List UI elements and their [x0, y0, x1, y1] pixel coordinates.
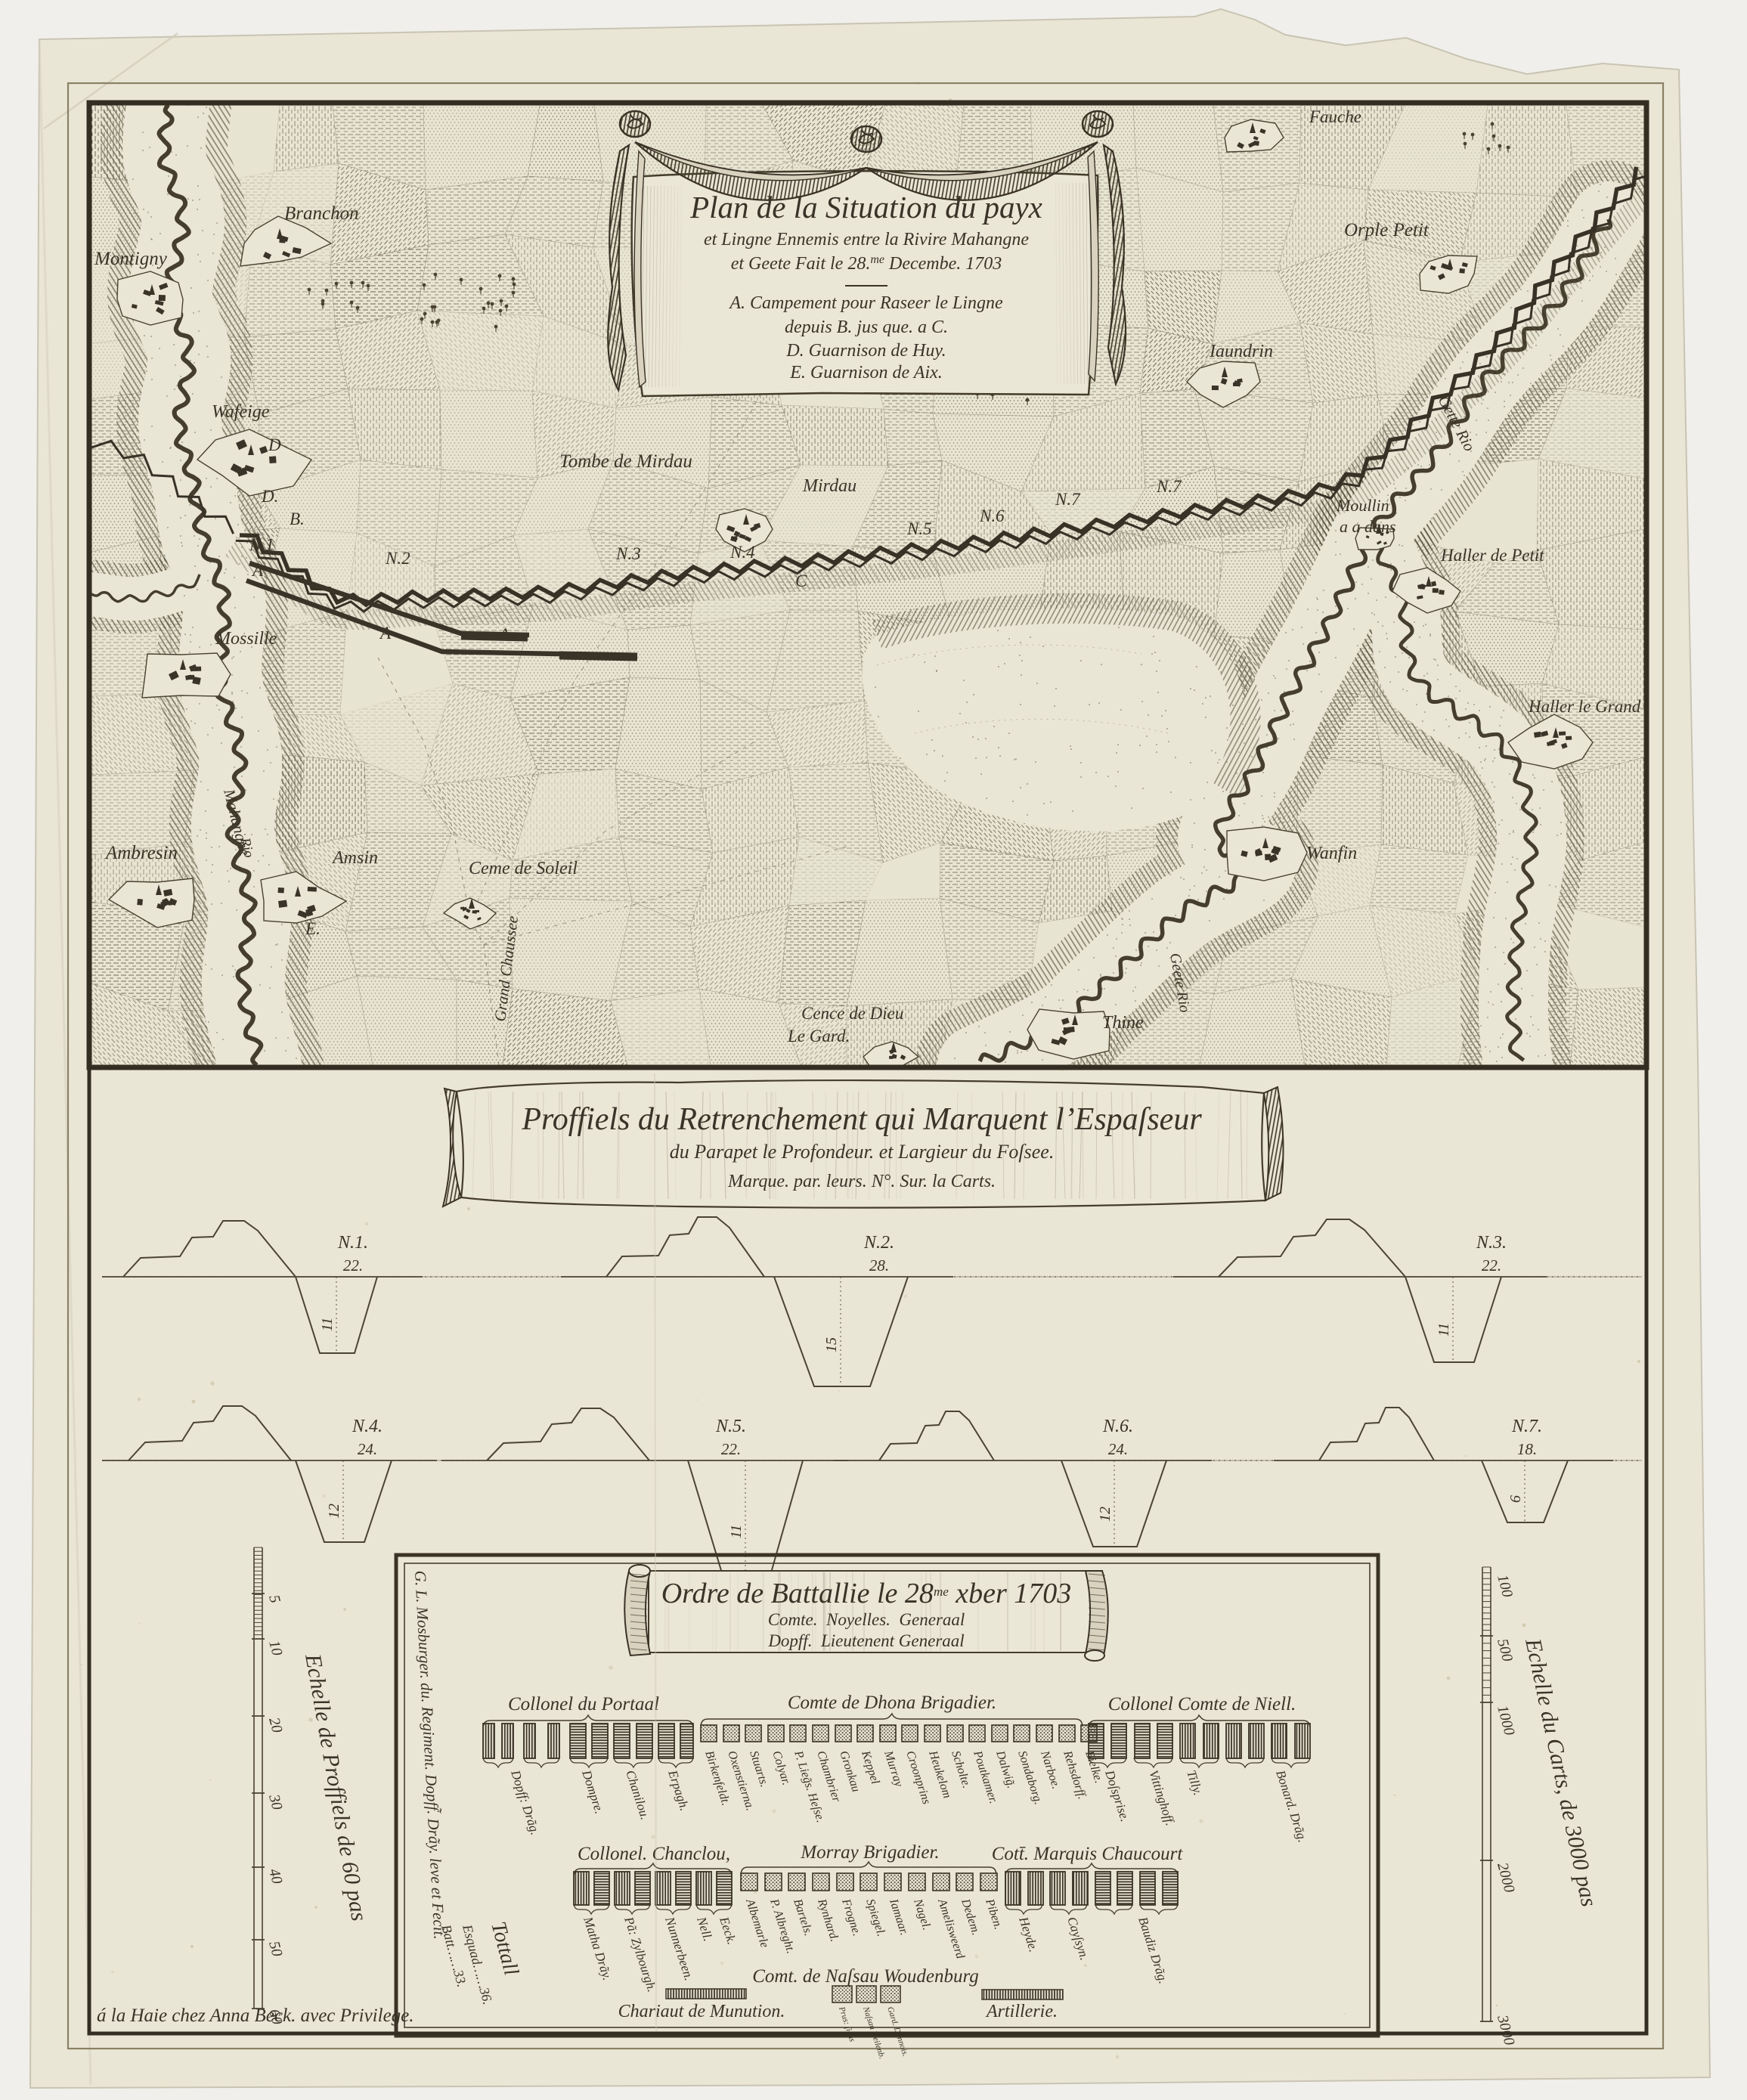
svg-text:á la Haie chez Anna Beck. avec: á la Haie chez Anna Beck. avec Privilege… — [97, 2006, 414, 2026]
svg-text:Thine: Thine — [1102, 1013, 1144, 1033]
svg-text:12: 12 — [326, 1504, 342, 1519]
svg-text:E. Guarnison de Aix.: E. Guarnison de Aix. — [789, 363, 943, 383]
svg-text:N.2.: N.2. — [863, 1233, 894, 1253]
svg-text:N.3.: N.3. — [1476, 1233, 1507, 1253]
svg-text:Moullin: Moullin — [1336, 496, 1389, 515]
svg-text:B.: B. — [290, 510, 305, 528]
svg-text:Branchon: Branchon — [284, 203, 359, 224]
svg-text:D.: D. — [261, 487, 278, 506]
svg-text:N.5: N.5 — [906, 519, 932, 538]
svg-text:et Lingne Ennemis entre la Riv: et Lingne Ennemis entre la Rivire Mahang… — [704, 230, 1029, 249]
svg-text:Mirdau: Mirdau — [802, 476, 856, 496]
svg-text:A: A — [379, 624, 392, 643]
svg-text:Haller de Petit: Haller de Petit — [1440, 546, 1544, 565]
svg-text:Proffiels du Retrenchement qui: Proffiels du Retrenchement qui Marquent … — [521, 1102, 1202, 1137]
svg-text:12: 12 — [1097, 1507, 1114, 1522]
svg-text:Iaundrin: Iaundrin — [1209, 342, 1273, 361]
svg-text:Montigny: Montigny — [94, 249, 168, 269]
svg-text:D. Guarnison de Huy.: D. Guarnison de Huy. — [785, 341, 946, 361]
svg-text:Marque. par. leurs. N°. Sur. l: Marque. par. leurs. N°. Sur. la Carts. — [727, 1172, 996, 1191]
svg-text:Fauche: Fauche — [1309, 107, 1361, 126]
svg-text:18.: 18. — [1517, 1440, 1537, 1458]
svg-text:Amsin: Amsin — [331, 848, 378, 868]
svg-text:Orple Petit: Orple Petit — [1344, 220, 1430, 240]
svg-text:Comte. Noyelles. Generaal: Comte. Noyelles. Generaal — [768, 1610, 965, 1629]
svg-text:a a dans: a a dans — [1340, 517, 1396, 536]
svg-text:Mossille: Mossille — [215, 629, 277, 649]
svg-text:et Geete Fait le 28.me Decembe: et Geete Fait le 28.me Decembe. 1703 — [731, 253, 1002, 274]
svg-text:Haller le Grand: Haller le Grand — [1528, 697, 1641, 716]
svg-text:A: A — [251, 561, 264, 580]
svg-text:N.7: N.7 — [1156, 477, 1182, 496]
svg-text:Comte de Dhona Brigadier.: Comte de Dhona Brigadier. — [788, 1693, 996, 1713]
svg-text:Tombe de Mirdau: Tombe de Mirdau — [559, 451, 692, 472]
svg-text:11: 11 — [319, 1318, 336, 1332]
svg-text:Collonel du Portaal: Collonel du Portaal — [508, 1694, 659, 1714]
svg-text:Ceme de Soleil: Ceme de Soleil — [469, 859, 578, 878]
svg-text:N.4: N.4 — [729, 543, 755, 562]
svg-text:N.5.: N.5. — [715, 1417, 746, 1436]
svg-text:N.6: N.6 — [979, 506, 1005, 525]
svg-text:22.: 22. — [721, 1440, 741, 1458]
svg-text:Comt. de Naſsau Woudenburg: Comt. de Naſsau Woudenburg — [752, 1966, 979, 1987]
svg-text:Chariaut de Munution.: Chariaut de Munution. — [618, 2002, 785, 2021]
svg-text:Plan de la Situation du payx: Plan de la Situation du payx — [689, 190, 1042, 225]
svg-text:Ambresin: Ambresin — [104, 843, 178, 863]
svg-text:D: D — [268, 435, 281, 454]
svg-text:Collonel Comte de Niell.: Collonel Comte de Niell. — [1108, 1694, 1296, 1714]
svg-text:N.4.: N.4. — [352, 1417, 383, 1436]
svg-text:Le Gard.: Le Gard. — [787, 1027, 850, 1045]
svg-text:15: 15 — [823, 1337, 840, 1352]
svg-text:A. Campement pour Raseer le Li: A. Campement pour Raseer le Lingne — [728, 293, 1003, 313]
svg-text:depuis B. jus que. a C.: depuis B. jus que. a C. — [785, 317, 948, 337]
svg-text:Wafeige: Wafeige — [212, 402, 270, 422]
svg-text:11: 11 — [728, 1525, 745, 1539]
svg-text:E.: E. — [305, 919, 321, 938]
svg-text:Artillerie.: Artillerie. — [985, 2002, 1058, 2021]
svg-text:Dopff. Lieutenent Generaal: Dopff. Lieutenent Generaal — [767, 1631, 964, 1650]
svg-text:C: C — [795, 571, 807, 590]
svg-text:22.: 22. — [1482, 1256, 1501, 1275]
svg-text:6: 6 — [1507, 1495, 1524, 1503]
svg-text:N.2: N.2 — [385, 549, 410, 568]
svg-text:N.7.: N.7. — [1511, 1417, 1542, 1436]
svg-text:A: A — [497, 625, 510, 644]
svg-text:du Parapet le Profondeur. et L: du Parapet le Profondeur. et Largieur du… — [670, 1141, 1055, 1163]
svg-text:Cence de Dieu: Cence de Dieu — [801, 1004, 903, 1023]
svg-text:N.1.: N.1. — [337, 1233, 368, 1253]
svg-text:Ordre de Battallie le 28me xbe: Ordre de Battallie le 28me xber 1703 — [661, 1578, 1072, 1609]
svg-text:N.7: N.7 — [1055, 490, 1081, 509]
svg-text:24.: 24. — [1108, 1440, 1128, 1458]
svg-text:24.: 24. — [358, 1440, 377, 1458]
svg-text:N.3: N.3 — [615, 544, 641, 563]
svg-text:22.: 22. — [343, 1256, 363, 1275]
svg-text:N.6.: N.6. — [1102, 1417, 1133, 1436]
svg-text:28.: 28. — [869, 1256, 889, 1275]
svg-text:N.1: N.1 — [249, 535, 274, 554]
svg-text:Wanfin: Wanfin — [1306, 844, 1357, 863]
svg-text:11: 11 — [1436, 1323, 1452, 1337]
svg-text:Cott̄. Marquis Chaucourt: Cott̄. Marquis Chaucourt — [992, 1844, 1184, 1864]
svg-text:Collonel. Chanclou,: Collonel. Chanclou, — [578, 1844, 730, 1864]
svg-text:Morray Brigadier.: Morray Brigadier. — [800, 1842, 939, 1863]
